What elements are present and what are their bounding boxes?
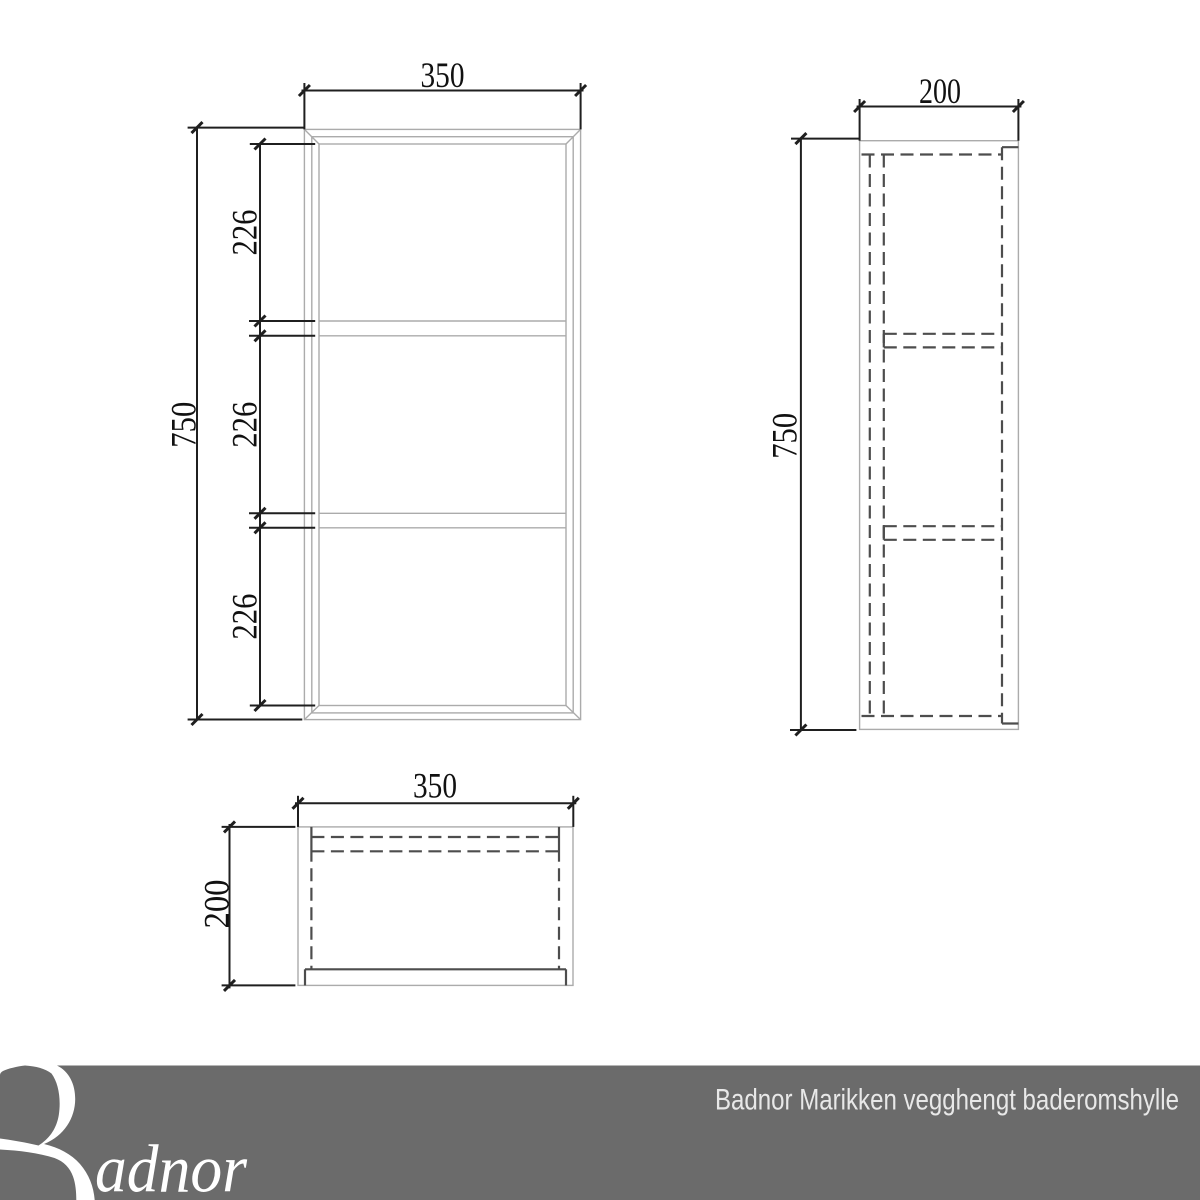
svg-text:226: 226 [225,594,265,640]
svg-text:200: 200 [197,880,237,929]
svg-text:adnor: adnor [95,1131,247,1200]
svg-text:226: 226 [225,210,265,256]
svg-text:350: 350 [413,766,457,806]
svg-text:Badnor Marikken vegghengt bade: Badnor Marikken vegghengt baderomshylle [715,1084,1179,1117]
svg-text:200: 200 [919,71,961,111]
svg-text:350: 350 [421,55,465,95]
svg-text:750: 750 [765,413,805,459]
svg-text:226: 226 [225,402,265,448]
svg-text:750: 750 [164,402,204,448]
